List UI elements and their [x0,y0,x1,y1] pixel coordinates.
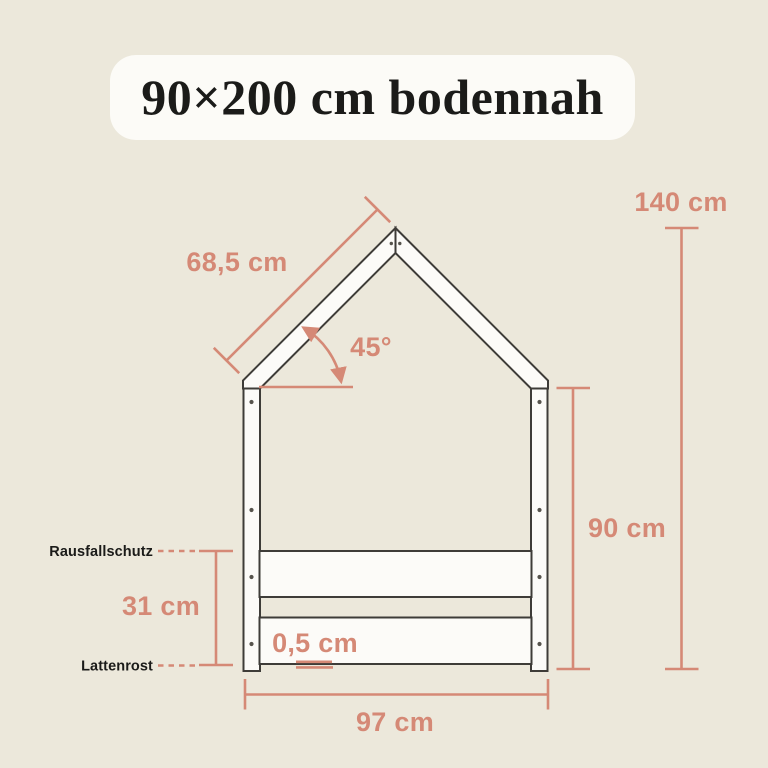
rail-height-value: 31 cm [122,591,200,621]
dim-wall-height: 90 cm [557,388,667,669]
outer-width-value: 97 cm [356,707,434,737]
left-post [244,381,261,671]
bed-frame [243,228,548,671]
roof-angle-value: 45° [350,332,392,362]
total-height-value: 140 cm [634,187,727,217]
dim-rail-height: 31 cm [122,551,233,665]
right-roof-beam [396,228,549,389]
wall-height-value: 90 cm [588,513,666,543]
dim-outer-width: 97 cm [245,679,548,737]
title-badge: 90×200 cm bodennah [110,55,635,140]
dim-total-height: 140 cm [634,187,727,669]
slatted-base-label: Lattenrost [81,659,153,675]
bed-dimension-diagram: 90×200 cm bodennah 68,5 cm [0,0,768,768]
right-post [531,381,548,671]
roof-slope-value: 68,5 cm [186,247,287,277]
fall-protection-label: Rausfallschutz [49,544,153,560]
label-fall-protection: Rausfallschutz [49,544,197,560]
page-title: 90×200 cm bodennah [141,69,604,125]
label-slatted-base: Lattenrost [81,659,197,675]
diagram-canvas: 90×200 cm bodennah 68,5 cm [0,0,768,768]
floor-gap-value: 0,5 cm [272,628,358,658]
fall-protection-rail [260,551,532,597]
